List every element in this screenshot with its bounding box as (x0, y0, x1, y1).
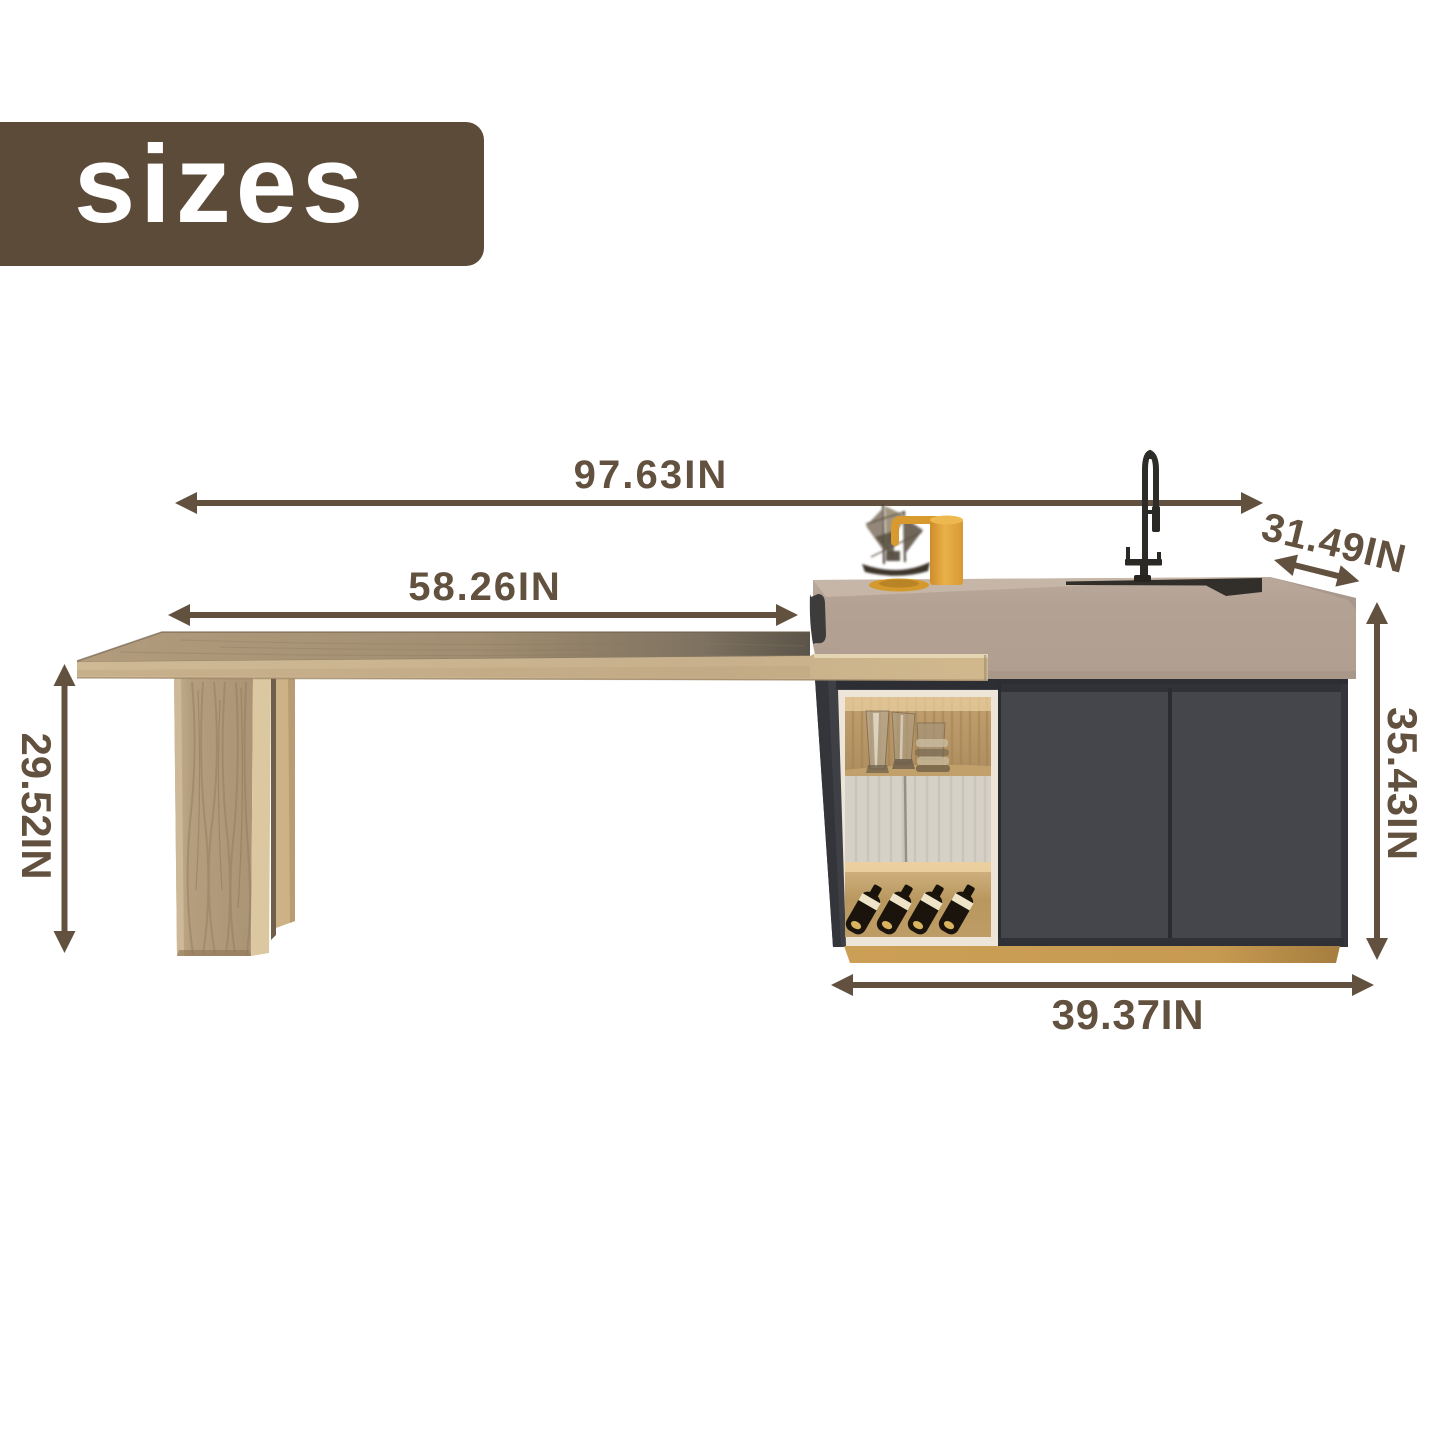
svg-text:29.52IN: 29.52IN (13, 732, 60, 879)
svg-text:sizes: sizes (74, 123, 368, 246)
svg-text:97.63IN: 97.63IN (574, 453, 729, 497)
svg-text:31.49IN: 31.49IN (1257, 505, 1410, 582)
svg-text:58.26IN: 58.26IN (408, 565, 561, 609)
svg-text:35.43IN: 35.43IN (1379, 707, 1426, 861)
svg-text:39.37IN: 39.37IN (1052, 991, 1205, 1038)
